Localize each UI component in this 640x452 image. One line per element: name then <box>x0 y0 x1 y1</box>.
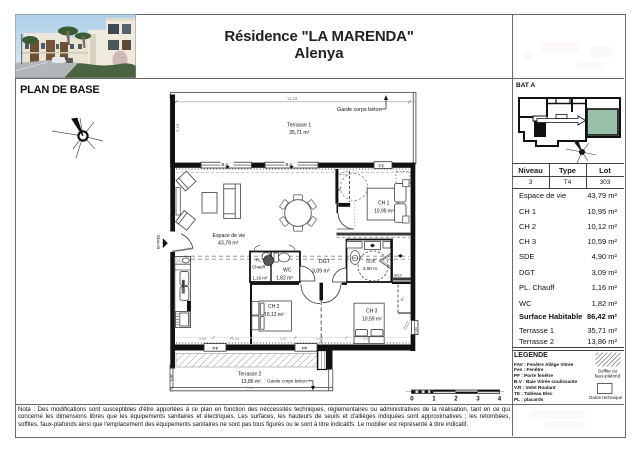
svg-text:1: 1 <box>432 396 436 403</box>
svg-text:SDE: SDE <box>366 259 376 265</box>
svg-text:Terrasse 2: Terrasse 2 <box>238 372 262 378</box>
svg-text:11.23: 11.23 <box>287 96 298 101</box>
svg-text:Chauff: Chauff <box>252 265 266 270</box>
svg-text:Garde corps béton: Garde corps béton <box>267 379 307 385</box>
svg-text:PL.: PL. <box>256 258 263 263</box>
svg-text:WC: WC <box>283 268 292 274</box>
svg-text:PL: PL <box>338 187 342 191</box>
svg-text:1,16 m²: 1,16 m² <box>253 276 268 281</box>
svg-text:3: 3 <box>476 396 480 403</box>
svg-text:43,79 m²: 43,79 m² <box>218 241 239 247</box>
svg-text:1,82 m²: 1,82 m² <box>276 276 293 282</box>
svg-text:PF: PF <box>213 346 219 351</box>
svg-text:PF: PF <box>379 164 385 169</box>
svg-text:10,12 m²: 10,12 m² <box>264 312 284 318</box>
svg-text:0: 0 <box>410 396 414 403</box>
svg-text:BAT A: BAT A <box>516 82 535 89</box>
svg-text:CH 1: CH 1 <box>378 201 390 207</box>
svg-text:7.10: 7.10 <box>246 386 253 390</box>
svg-text:10,95 m²: 10,95 m² <box>374 209 394 215</box>
svg-text:4,90 m: 4,90 m <box>363 266 378 272</box>
svg-text:DGT: DGT <box>319 259 331 265</box>
svg-text:PF: PF <box>302 346 308 351</box>
svg-text:3,09 m²: 3,09 m² <box>312 269 330 275</box>
svg-text:Séch: Séch <box>394 274 403 278</box>
svg-text:2: 2 <box>454 396 458 403</box>
svg-text:13,86 m²: 13,86 m² <box>241 379 261 385</box>
svg-text:Terrasse 1: Terrasse 1 <box>287 123 311 129</box>
svg-text:Garde corps béton: Garde corps béton <box>337 107 382 113</box>
svg-text:3.18: 3.18 <box>175 123 180 132</box>
svg-text:F.AV: F.AV <box>414 326 418 334</box>
svg-text:CH 2: CH 2 <box>268 304 280 310</box>
svg-text:10,59 m²: 10,59 m² <box>362 317 382 323</box>
svg-text:PL: PL <box>401 297 405 301</box>
svg-text:CH 3: CH 3 <box>366 309 378 315</box>
svg-text:35,71 m²: 35,71 m² <box>289 130 310 136</box>
svg-text:Espace de vie: Espace de vie <box>213 233 246 239</box>
svg-text:4: 4 <box>498 396 502 403</box>
svg-text:ENTREE: ENTREE <box>157 234 161 249</box>
